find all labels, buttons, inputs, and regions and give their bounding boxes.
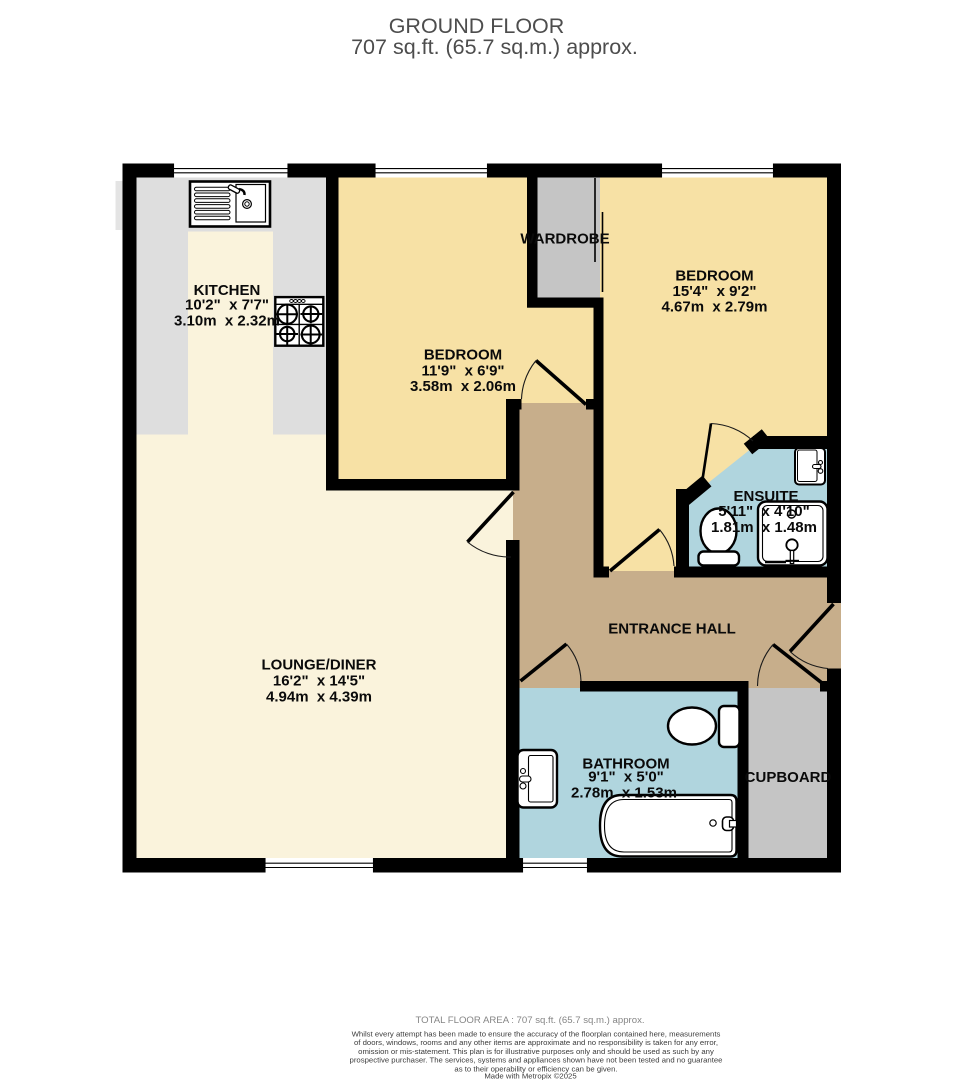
- svg-text:11'9" x 6'9": 11'9" x 6'9": [421, 363, 504, 380]
- svg-text:1.81m x 1.48m: 1.81m x 1.48m: [711, 519, 817, 536]
- svg-text:3.58m x 2.06m: 3.58m x 2.06m: [410, 378, 516, 395]
- svg-text:Whilst every attempt has been: Whilst every attempt has been made to en…: [352, 1029, 721, 1038]
- svg-text:LOUNGE/DINER: LOUNGE/DINER: [261, 656, 376, 673]
- svg-text:TOTAL FLOOR AREA : 707 sq.ft.: TOTAL FLOOR AREA : 707 sq.ft. (65.7 sq.m…: [415, 1015, 644, 1026]
- svg-text:4.67m x 2.79m: 4.67m x 2.79m: [662, 298, 768, 315]
- svg-text:3.10m x 2.32m: 3.10m x 2.32m: [174, 312, 280, 329]
- svg-text:of doors, windows, rooms and a: of doors, windows, rooms and any other i…: [354, 1038, 718, 1047]
- svg-text:prospective purchaser. The ser: prospective purchaser. The services, sys…: [350, 1056, 723, 1065]
- svg-text:9'1" x 5'0": 9'1" x 5'0": [588, 768, 664, 785]
- svg-text:10'2" x 7'7": 10'2" x 7'7": [185, 297, 269, 314]
- svg-text:BEDROOM: BEDROOM: [675, 267, 753, 284]
- svg-text:Made with Metropix ©2025: Made with Metropix ©2025: [484, 1071, 576, 1080]
- svg-text:CUPBOARD: CUPBOARD: [745, 769, 832, 786]
- svg-text:707 sq.ft. (65.7 sq.m.) approx: 707 sq.ft. (65.7 sq.m.) approx.: [351, 35, 638, 59]
- svg-text:ENTRANCE HALL: ENTRANCE HALL: [608, 620, 736, 637]
- svg-text:16'2" x 14'5": 16'2" x 14'5": [273, 672, 365, 689]
- svg-text:WARDROBE: WARDROBE: [520, 231, 609, 248]
- svg-text:2.78m x 1.53m: 2.78m x 1.53m: [571, 784, 677, 801]
- svg-text:5'11" x 4'10": 5'11" x 4'10": [718, 503, 809, 520]
- svg-text:omission or mis-statement. Thi: omission or mis-statement. This plan is …: [358, 1047, 714, 1056]
- svg-text:BEDROOM: BEDROOM: [424, 346, 502, 363]
- svg-text:4.94m x 4.39m: 4.94m x 4.39m: [266, 688, 372, 705]
